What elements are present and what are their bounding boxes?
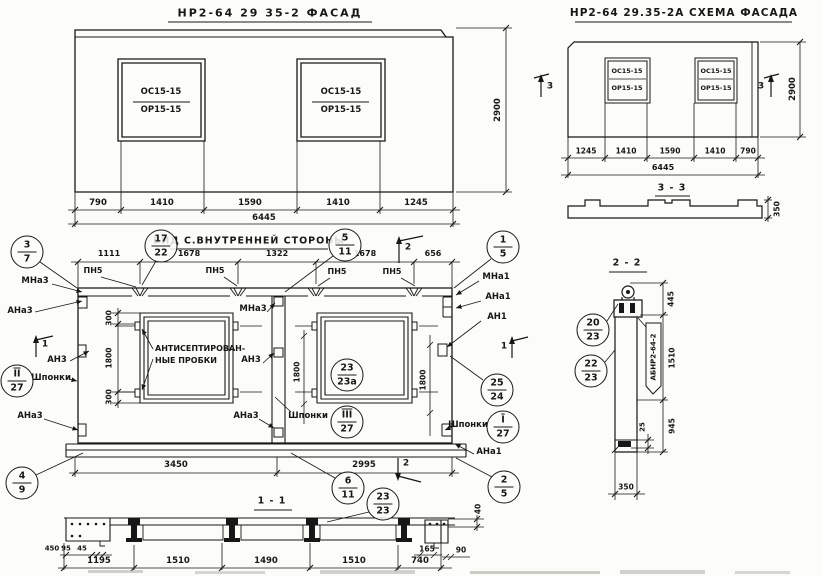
callout-bottom: 24 (490, 391, 503, 403)
window-mark: ОР15-15 (700, 85, 731, 92)
dim-label: 1322 (266, 250, 288, 258)
window-mark: ОС15-15 (141, 88, 182, 97)
section-marker-label: 1 (501, 343, 507, 352)
fitting-label-mna3: МНа3 (239, 305, 266, 314)
section11-title: 1 - 1 (258, 496, 287, 506)
callout-bottom: 11 (341, 489, 354, 501)
callout-top: 23 (338, 363, 357, 376)
dim-label: 790 (740, 147, 756, 155)
callout-top: 2 (495, 475, 514, 488)
window-mark: ОС15-15 (321, 88, 362, 97)
scan-artifact (735, 571, 790, 574)
dim-label: 45 (77, 546, 87, 553)
callout-2-5: 25 (488, 471, 521, 504)
dim-label: 1590 (660, 147, 681, 155)
dim-label: 95 (61, 546, 71, 553)
dim-label: 3450 (164, 461, 188, 470)
callout-top: 23 (374, 492, 393, 505)
facade-window-1 (118, 59, 205, 141)
callout-top: 25 (488, 378, 507, 391)
callout-17-22: 1722 (145, 230, 178, 263)
keys-label: Шпонки (448, 421, 488, 430)
dim-label: 1800 (293, 362, 301, 383)
callout-25-24: 2524 (481, 374, 514, 407)
callout-20-23: 2023 (577, 314, 610, 347)
schema-window-1 (605, 58, 650, 103)
callout-bottom: 11 (338, 246, 351, 258)
dim-label: 1590 (238, 199, 262, 208)
section-marker-label: 1 (42, 341, 48, 350)
dim-label: 2900 (789, 77, 798, 101)
fitting-label-ana3: АНа3 (233, 412, 258, 421)
callout-top: 5 (336, 233, 355, 246)
dim-label: 1510 (166, 557, 190, 566)
fitting-label-an1: АН1 (487, 313, 507, 322)
window-mark: ОС15-15 (700, 68, 731, 75)
fitting-label-ana3: АНа3 (7, 307, 32, 316)
callout-bottom: 23 (586, 331, 599, 343)
keys-label: Шпонки (31, 374, 71, 383)
section11-profile (64, 510, 455, 548)
plugs-note-line1: АНТИСЕПТИРОВАН- (155, 345, 245, 353)
view-bottom-ledge (66, 444, 466, 457)
facade-window-2 (297, 59, 385, 141)
dim-label: 165 (419, 545, 435, 553)
dim-label: 1800 (105, 348, 113, 369)
dim-label: 2995 (352, 461, 376, 470)
callout-top: I (494, 415, 513, 428)
callout-top: 4 (13, 471, 32, 484)
scan-artifact (195, 571, 265, 574)
section-marker-label: 3 (547, 83, 553, 92)
panel-mark-label: АБНР2-64-2 (651, 333, 658, 380)
dim-label: 6445 (652, 164, 674, 172)
dim-label: 1410 (150, 199, 174, 208)
callout-bottom: 27 (340, 423, 353, 435)
view-panel-outline (66, 249, 466, 457)
callout-top: 20 (584, 318, 603, 331)
dim-label: 2900 (494, 98, 503, 122)
dim-label: 450 (45, 546, 60, 553)
section-marker-label: 3 (758, 83, 764, 92)
dim-label: 1800 (419, 370, 427, 391)
callout-top: 1 (494, 235, 513, 248)
callout-bottom: 23 (584, 372, 597, 384)
callout-top: 17 (152, 234, 171, 247)
section-marker-label: 2 (405, 244, 411, 253)
scan-artifact (470, 571, 600, 574)
dim-label: 25 (640, 422, 647, 432)
fitting-label-an3: АН3 (241, 356, 261, 365)
drawing-linework (0, 0, 822, 576)
callout-top: III (338, 410, 357, 423)
view-title: ВИД С.ВНУТРЕННЕЙ СТОРОНЫ (153, 236, 345, 246)
callout-II-27: II27 (1, 365, 34, 398)
dim-label: 300 (105, 310, 113, 326)
rib-sections (126, 518, 412, 542)
callout-23-23a: 2323а (331, 359, 364, 392)
dim-label: 1245 (404, 199, 428, 208)
callout-bottom: 27 (496, 428, 509, 440)
dim-label: 6445 (252, 214, 276, 223)
callout-23-23: 2323 (367, 488, 400, 521)
fitting-label-mna1: МНа1 (482, 273, 509, 282)
fitting-label-ana1: АНа1 (476, 448, 501, 457)
view-mullion (272, 296, 285, 443)
fitting-label-mna3: МНа3 (21, 277, 48, 286)
dim-label: 1410 (326, 199, 350, 208)
fitting-label-ana3: АНа3 (17, 412, 42, 421)
dim-label: 90 (456, 546, 466, 554)
callout-bottom: 5 (501, 488, 508, 500)
callout-top: 6 (339, 476, 358, 489)
window-mark: ОР15-15 (611, 85, 642, 92)
plugs-note-line2: НЫЕ ПРОБКИ (155, 357, 217, 365)
fitting-label-pn5: ПН5 (328, 268, 347, 276)
anchor-plate (618, 441, 631, 447)
callout-bottom: 7 (24, 253, 31, 265)
dim-label: 350 (773, 201, 781, 217)
window-mark: ОР15-15 (321, 106, 362, 115)
callout-top: 22 (582, 359, 601, 372)
callout-22-23: 2223 (575, 355, 608, 388)
callout-bottom: 23 (376, 505, 389, 517)
callout-III-27: III27 (331, 406, 364, 439)
callout-top: 3 (18, 240, 37, 253)
callout-5-11: 511 (329, 229, 362, 262)
schema-title: НР2-64 29.35-2А СХЕМА ФАСАДА (570, 8, 798, 19)
callout-4-9: 49 (6, 467, 39, 500)
dim-label: 945 (668, 418, 676, 434)
dim-label: 1510 (668, 348, 676, 369)
dim-label: 656 (425, 250, 442, 258)
dim-label: 445 (667, 291, 675, 307)
dim-label: 1195 (87, 557, 111, 566)
window-mark: ОС15-15 (611, 68, 642, 75)
view-window-2 (317, 313, 412, 403)
schema-section-markers (534, 74, 779, 97)
lifting-loop-notches (132, 288, 422, 296)
section-marker-label: 2 (403, 460, 409, 469)
dim-label: 740 (411, 557, 429, 566)
fitting-label-pn5: ПН5 (206, 267, 225, 275)
schema-panel-outline (568, 22, 792, 137)
dim-label: 350 (618, 483, 634, 491)
dim-label: 1111 (98, 250, 120, 258)
dim-label: 1410 (705, 147, 726, 155)
callout-bottom: 22 (154, 247, 167, 259)
callout-bottom: 23а (337, 376, 357, 388)
facade-panel-outline (75, 30, 453, 192)
schema-window-2 (695, 58, 737, 103)
callout-I-27: I27 (487, 411, 520, 444)
callout-6-11: 611 (332, 472, 365, 505)
schema-dimensions (561, 39, 806, 178)
facade-dimensions (68, 22, 512, 227)
fitting-label-an3: АН3 (47, 356, 67, 365)
dim-label: 1490 (254, 557, 278, 566)
drawing-sheet: НР2-64 29 35-2 ФАСАД ОС15-15 ОР15-15 ОС1… (0, 0, 822, 576)
scan-artifact (620, 570, 705, 574)
dim-label: 1510 (342, 557, 366, 566)
facade-title: НР2-64 29 35-2 ФАСАД (178, 8, 363, 19)
dim-label: 1678 (178, 250, 200, 258)
callout-bottom: 5 (500, 248, 507, 260)
dim-label: 1410 (616, 147, 637, 155)
section33-title: 3 - 3 (658, 183, 687, 193)
dim-label: 790 (89, 199, 107, 208)
scan-artifact (88, 570, 143, 573)
section33-profile (568, 196, 772, 222)
fitting-label-pn5: ПН5 (84, 267, 103, 275)
section22-title: 2 - 2 (613, 258, 642, 268)
callout-bottom: 9 (19, 484, 26, 496)
callout-bottom: 27 (10, 382, 23, 394)
scan-artifact (320, 570, 415, 574)
callout-top: II (8, 369, 27, 382)
window-mark: ОР15-15 (141, 106, 182, 115)
dim-label: 40 (474, 504, 482, 514)
callout-1-5: 15 (487, 231, 520, 264)
callout-3-7: 37 (11, 236, 44, 269)
fitting-label-pn5: ПН5 (383, 268, 402, 276)
dim-label: 300 (105, 389, 113, 405)
keys-label: Шпонки (288, 412, 328, 421)
dim-label: 1245 (576, 147, 597, 155)
fitting-label-ana1: АНа1 (485, 293, 510, 302)
